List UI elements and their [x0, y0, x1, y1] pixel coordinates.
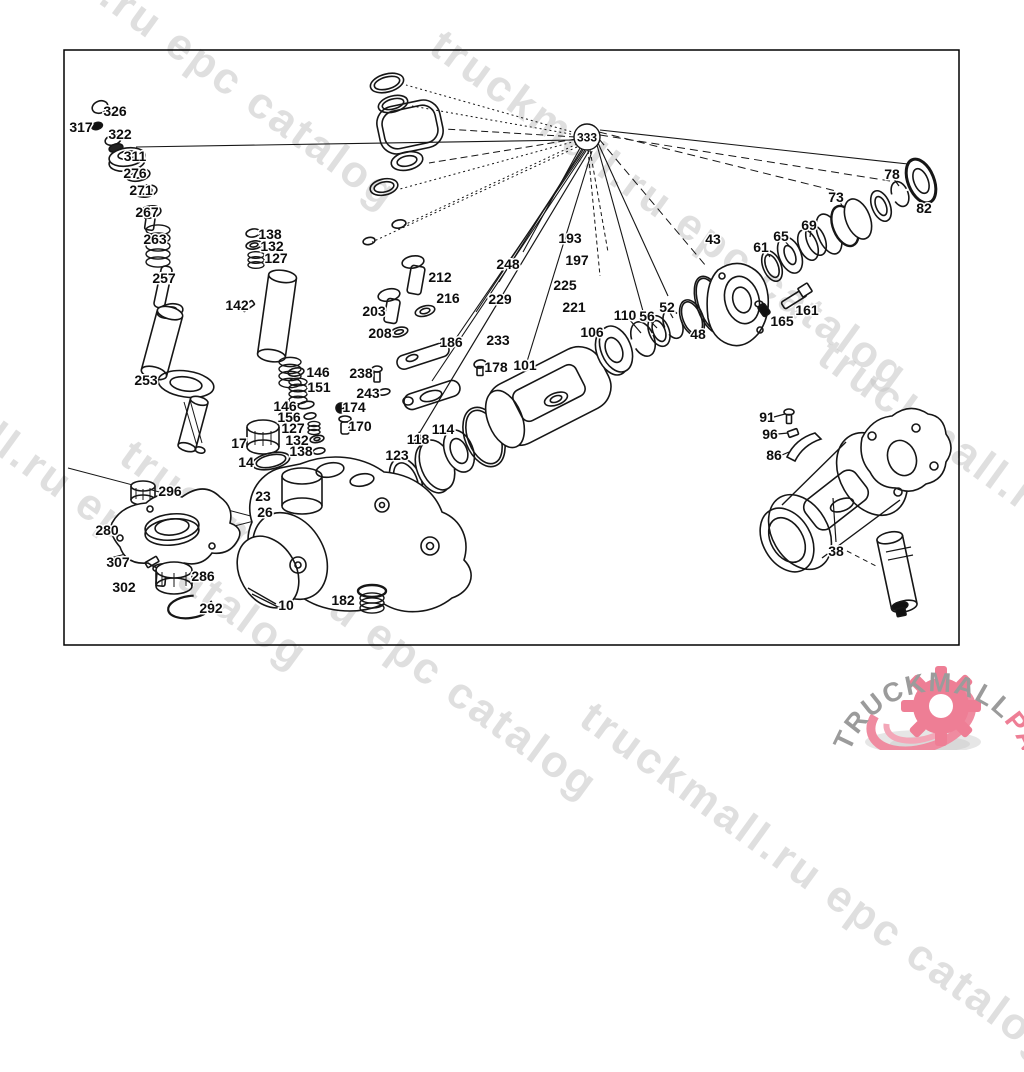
logo-text-pink: PARTS: [0, 0, 1024, 750]
logo-text: TRUCKMALLPARTS: [0, 0, 1024, 750]
truckmall-logo: TRUCKMALLPARTS: [0, 0, 1024, 750]
